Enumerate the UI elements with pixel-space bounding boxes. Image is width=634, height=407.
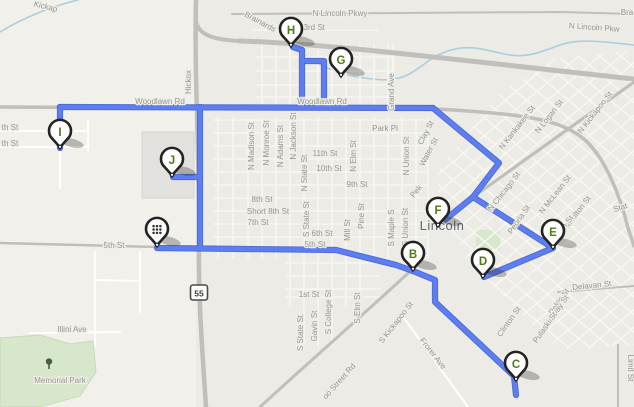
- street-label: N Elm St: [349, 139, 358, 171]
- street-label: 6th St: [312, 229, 334, 238]
- street-label: 5th St: [305, 240, 327, 249]
- street-label: 9th St: [347, 180, 369, 189]
- street-label: 5th St: [104, 241, 126, 250]
- street-label: 1st St: [299, 290, 320, 299]
- street-label: Short 8th St: [247, 207, 290, 216]
- svg-text:F: F: [434, 205, 441, 217]
- street-label: S Union St: [401, 207, 410, 246]
- street-label: Mill St: [343, 218, 352, 241]
- svg-text:E: E: [549, 227, 557, 239]
- street-label: S College St: [324, 289, 333, 334]
- street-label: 11th St: [313, 149, 339, 158]
- street-label: Gavin St: [310, 310, 319, 341]
- street-label: N State St: [300, 154, 309, 191]
- street-label: Grand Ave: [387, 73, 396, 111]
- street-label: Pine St: [357, 202, 366, 229]
- route-55-shield: 55: [191, 285, 208, 300]
- street-label: N Jackson St: [289, 112, 298, 160]
- street-label: Illini Ave: [57, 325, 87, 334]
- street-label: 7th St: [248, 218, 270, 227]
- svg-text:C: C: [512, 359, 520, 371]
- street-label: Hickox: [184, 70, 193, 94]
- street-label: S State St: [296, 314, 305, 351]
- street-label: Woodlawn Rd: [135, 97, 185, 106]
- street-label: N Monroe St: [262, 120, 271, 166]
- street-label: th St: [2, 139, 19, 148]
- street-label: N Lincoln Pkwy: [313, 9, 368, 18]
- street-label: Memorial Park: [34, 376, 87, 385]
- street-label: Bra: [621, 8, 634, 17]
- svg-text:H: H: [287, 25, 295, 37]
- street-label: 8th St: [252, 195, 274, 204]
- svg-text:D: D: [479, 256, 487, 268]
- svg-text:B: B: [409, 249, 417, 261]
- svg-text:I: I: [58, 127, 61, 139]
- street-label: th St: [2, 123, 19, 132]
- street-label: N Adams St: [276, 124, 285, 167]
- svg-text:G: G: [337, 55, 346, 67]
- street-label: S Maple S: [387, 210, 396, 247]
- street-label: Park Pl: [372, 124, 398, 133]
- street-label: Limit St: [626, 355, 634, 382]
- street-label: N Union St: [402, 136, 411, 175]
- street-label: Woodlawn Rd: [297, 97, 347, 106]
- street-label: S Elm St: [353, 292, 362, 324]
- map-canvas[interactable]: N Lincoln PkwyN Lincoln PkwBraBrainardsK…: [0, 0, 634, 407]
- street-label: 10th St: [316, 164, 342, 173]
- street-label: N Madison St: [247, 121, 256, 170]
- shield-label: 55: [194, 289, 204, 299]
- street-label: S State St: [302, 200, 311, 237]
- svg-text:J: J: [169, 155, 175, 167]
